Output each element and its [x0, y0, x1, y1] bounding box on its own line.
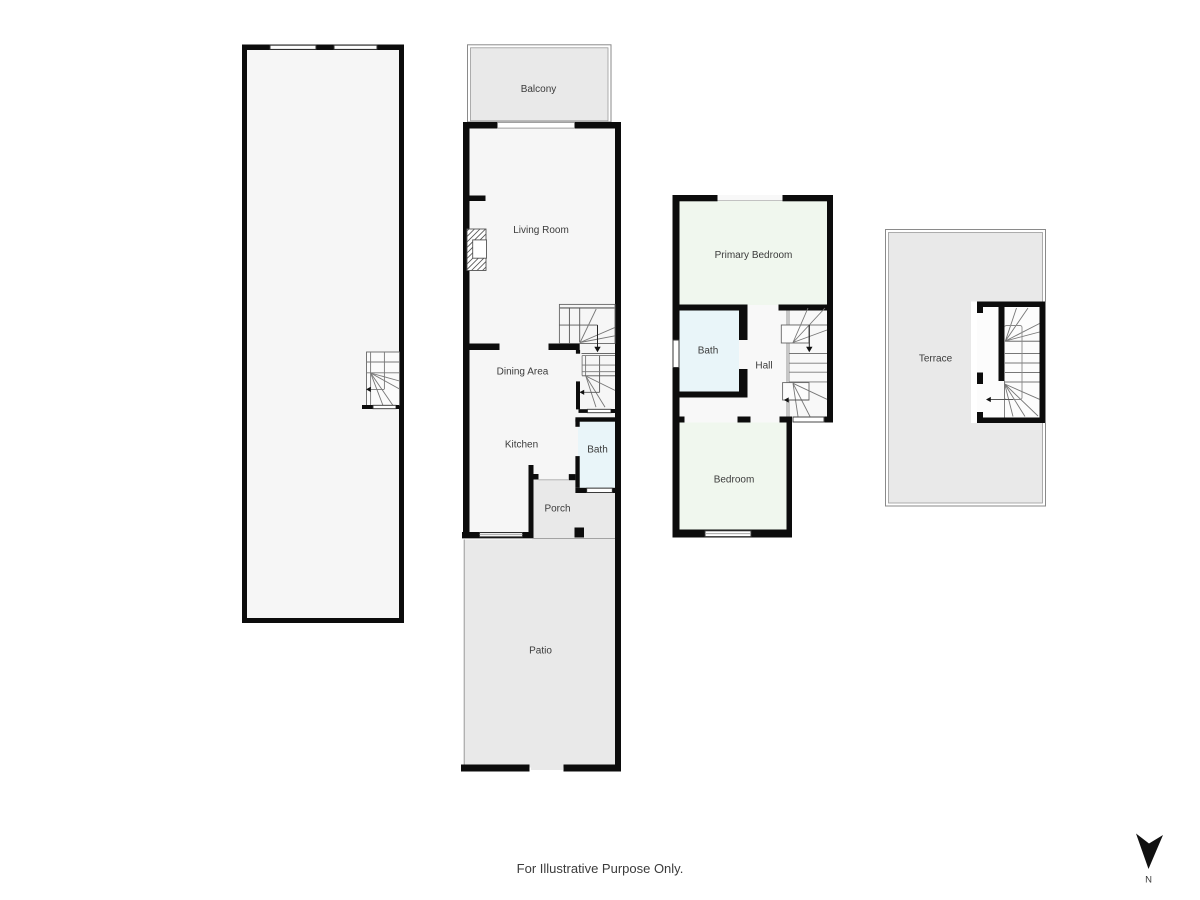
- svg-text:Primary Bedroom: Primary Bedroom: [715, 250, 793, 261]
- svg-text:Dining Area: Dining Area: [497, 367, 549, 378]
- svg-text:For Illustrative Purpose Only.: For Illustrative Purpose Only.: [517, 861, 684, 876]
- svg-text:Patio: Patio: [529, 646, 552, 657]
- svg-text:Porch: Porch: [544, 504, 570, 515]
- svg-text:N: N: [1145, 875, 1152, 886]
- svg-text:Balcony: Balcony: [521, 84, 557, 95]
- svg-text:Hall: Hall: [755, 361, 772, 372]
- svg-text:Living Room: Living Room: [513, 225, 569, 236]
- svg-text:Bath: Bath: [698, 346, 719, 357]
- svg-text:Bedroom: Bedroom: [714, 475, 755, 486]
- svg-text:Kitchen: Kitchen: [505, 440, 538, 451]
- svg-text:Terrace: Terrace: [919, 354, 953, 365]
- svg-text:Bath: Bath: [587, 445, 608, 456]
